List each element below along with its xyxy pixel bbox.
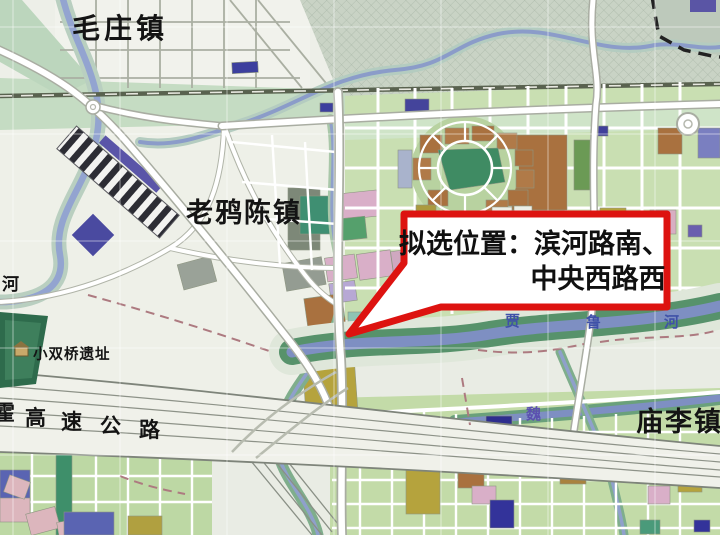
- svg-text:河: 河: [664, 313, 679, 331]
- planning-map-screenshot: 毛庄镇 老鸦陈镇 庙李镇 小双桥遗址 河 魏 霍 高 速 公 路 贾 鲁 河 拟…: [0, 0, 720, 535]
- label-wei-river: 魏: [525, 405, 541, 423]
- label-heritage-site: 小双桥遗址: [33, 345, 111, 363]
- svg-text:路: 路: [139, 418, 161, 442]
- label-laoyachen-town: 老鸦陈镇: [186, 197, 302, 228]
- label-maozhuang-town: 毛庄镇: [72, 12, 168, 44]
- svg-text:速: 速: [61, 411, 82, 434]
- svg-text:霍: 霍: [0, 402, 15, 425]
- svg-text:贾: 贾: [505, 313, 520, 330]
- svg-text:鲁: 鲁: [586, 313, 601, 331]
- callout-line2: 中央西路西: [531, 263, 666, 294]
- callout-line1: 拟选位置：滨河路南、: [399, 228, 669, 259]
- svg-text:高: 高: [25, 406, 46, 430]
- planning-map: 毛庄镇 老鸦陈镇 庙李镇 小双桥遗址 河 魏 霍 高 速 公 路 贾 鲁 河 拟…: [0, 0, 720, 535]
- label-left-river: 河: [2, 275, 19, 294]
- label-miaoli-town: 庙李镇: [636, 406, 720, 437]
- svg-text:公: 公: [100, 415, 121, 438]
